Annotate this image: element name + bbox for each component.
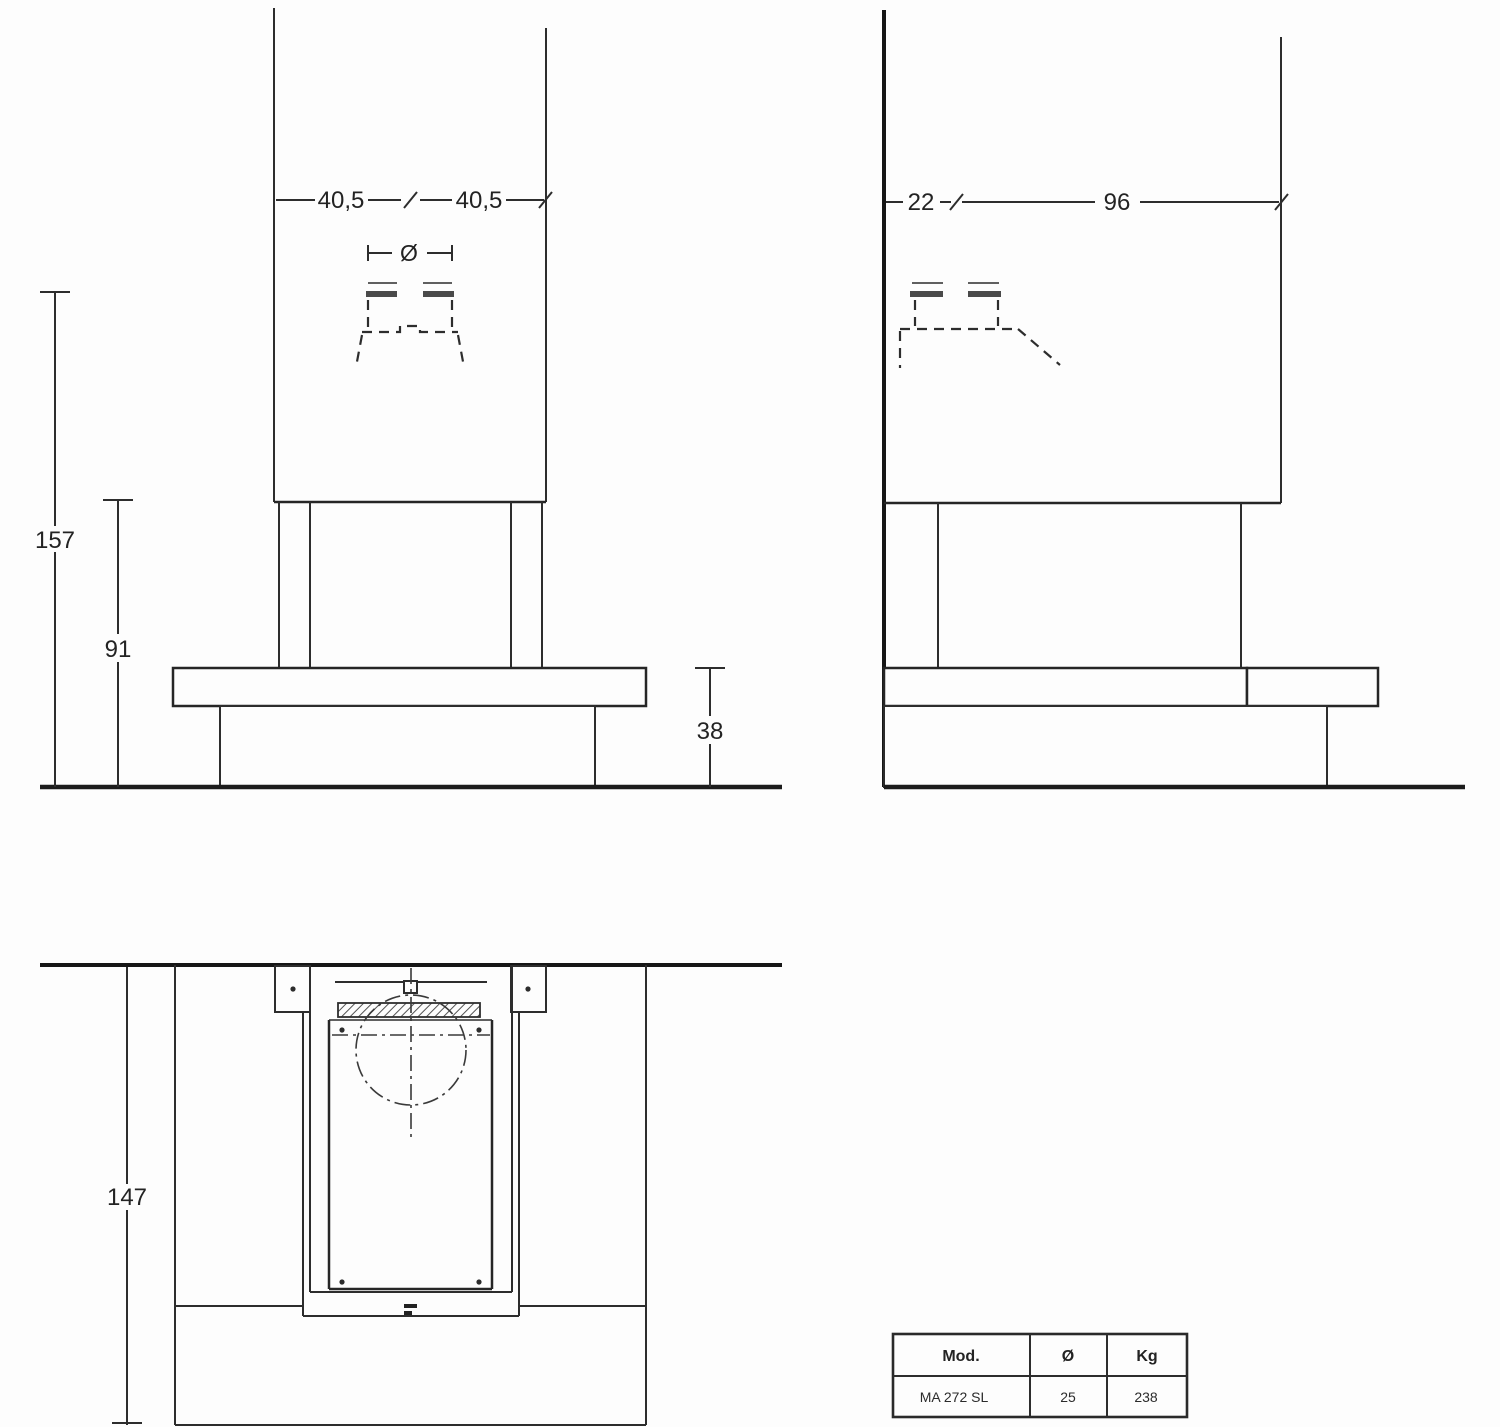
plan-dim-depth: 147 bbox=[107, 967, 147, 1425]
front-dim-width-right-label: 40,5 bbox=[456, 187, 503, 214]
side-hearth-slab bbox=[884, 668, 1247, 706]
front-flue-collar-symbol bbox=[356, 283, 464, 367]
technical-drawing-canvas: 40,5 40,5 Ø bbox=[0, 0, 1500, 1427]
side-flue-collar-symbol bbox=[900, 283, 1060, 368]
front-dim-hearth-height: 38 bbox=[695, 668, 725, 787]
front-columns bbox=[279, 502, 542, 668]
front-base bbox=[220, 706, 595, 787]
front-dim-hearth-height-label: 38 bbox=[697, 718, 724, 745]
spec-table-header-diameter: Ø bbox=[1062, 1348, 1074, 1365]
front-view: 40,5 40,5 Ø bbox=[35, 8, 782, 787]
front-dim-hood-height-label: 91 bbox=[105, 636, 132, 663]
front-dim-width: 40,5 40,5 bbox=[276, 187, 552, 214]
spec-table-diameter-value: 25 bbox=[1060, 1389, 1076, 1405]
spec-table: Mod. Ø Kg MA 272 SL 25 238 bbox=[893, 1334, 1187, 1417]
side-hearth-slab-extension bbox=[1247, 668, 1378, 706]
front-dim-total-height: 157 bbox=[35, 292, 75, 787]
plan-dim-depth-label: 147 bbox=[107, 1184, 147, 1211]
spec-table-model-value: MA 272 SL bbox=[920, 1389, 989, 1405]
front-flue-diameter-symbol: Ø bbox=[400, 240, 418, 266]
spec-table-header-weight: Kg bbox=[1136, 1348, 1157, 1365]
plan-view: 147 bbox=[40, 965, 782, 1425]
side-hood-outline bbox=[884, 37, 1281, 503]
side-dim-depth-label: 96 bbox=[1104, 189, 1131, 216]
front-dim-total-height-label: 157 bbox=[35, 527, 75, 554]
side-dim-depth: 22 96 bbox=[886, 189, 1288, 216]
side-column bbox=[938, 503, 1241, 668]
spec-table-header-mod: Mod. bbox=[942, 1348, 979, 1365]
side-view: 22 96 bbox=[884, 10, 1465, 787]
spec-table-weight-value: 238 bbox=[1134, 1389, 1158, 1405]
plan-firebox-lintel-hatch bbox=[338, 1003, 480, 1017]
front-dim-hood-height: 91 bbox=[103, 500, 133, 787]
front-dim-flue-diameter: Ø bbox=[368, 240, 452, 266]
fireplace-dimension-drawing: 40,5 40,5 Ø bbox=[0, 0, 1500, 1427]
side-base bbox=[884, 706, 1327, 787]
side-dim-flue-offset-label: 22 bbox=[908, 189, 935, 216]
front-hearth-slab bbox=[173, 668, 646, 706]
front-dim-width-left-label: 40,5 bbox=[318, 187, 365, 214]
